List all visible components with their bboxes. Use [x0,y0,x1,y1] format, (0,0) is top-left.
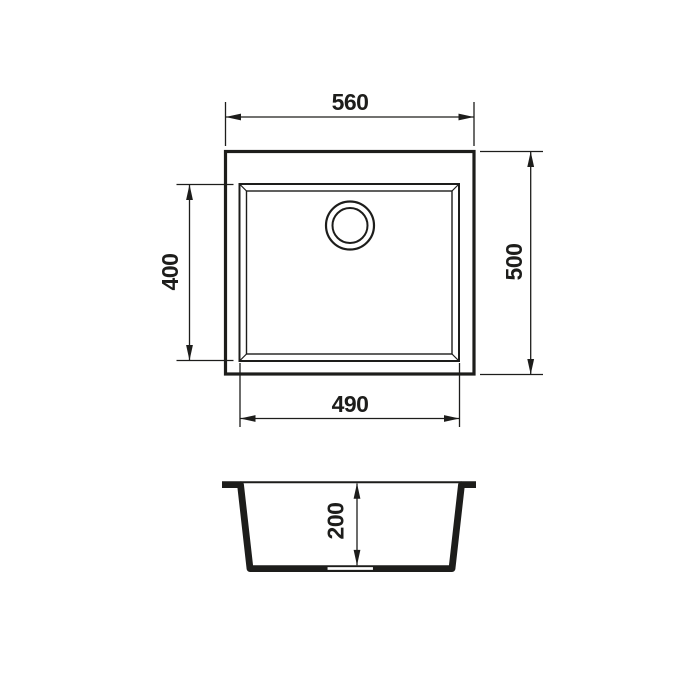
dim-label-bowl-width: 490 [332,391,369,417]
section-profile [222,485,476,569]
arrowhead-down [186,345,193,361]
bowl-corner-chamfer [452,354,459,361]
bowl-corner-chamfer [240,185,247,192]
bowl-outer-edge [240,184,460,361]
bowl-corner-chamfer [240,354,247,361]
sink-dimension-drawing: 560 500 400 [0,0,700,700]
drain-outlet [327,567,374,571]
technical-drawing-page: 560 500 400 [0,0,700,700]
arrowhead-down [527,359,534,375]
dim-label-bowl-height: 200 [323,503,349,540]
drain-inner-circle [333,208,368,243]
arrowhead-right [459,114,475,121]
dim-overall-depth: 500 [480,152,543,375]
section-view: 200 [222,482,476,570]
arrowhead-right [444,415,460,422]
arrowhead-up [354,483,361,499]
dim-label-overall-width: 560 [332,89,369,115]
dim-label-bowl-depth: 400 [157,254,183,291]
dim-bowl-depth: 400 [157,185,233,361]
bowl-inner-edge [247,191,453,354]
arrowhead-left [226,114,242,121]
dim-bowl-height: 200 [323,483,361,565]
arrowhead-down [354,550,361,566]
bowl-corner-chamfer [452,185,459,192]
arrowhead-up [527,152,534,168]
dim-label-overall-depth: 500 [501,244,527,281]
dim-overall-width: 560 [226,89,475,146]
plan-view: 560 500 400 [157,89,543,427]
arrowhead-up [186,185,193,201]
arrowhead-left [240,415,256,422]
